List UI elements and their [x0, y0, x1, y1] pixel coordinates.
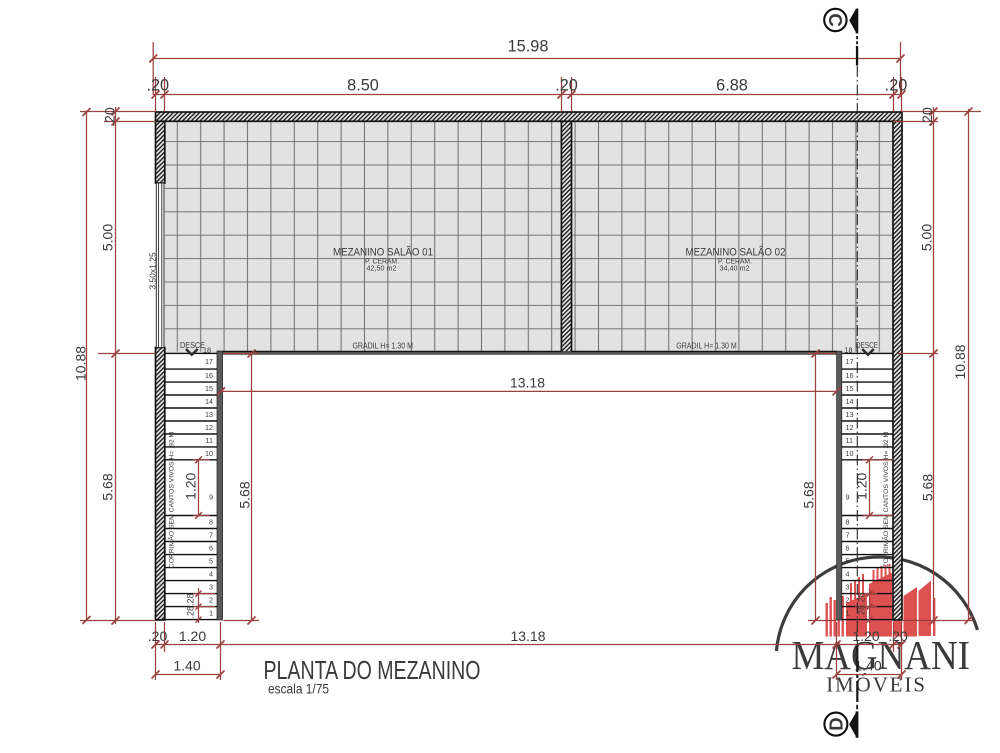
svg-text:1: 1: [209, 609, 213, 618]
svg-text:.20: .20: [919, 107, 935, 127]
svg-text:5.68: 5.68: [920, 474, 936, 501]
svg-text:PLANTA DO MEZANINO: PLANTA DO MEZANINO: [264, 655, 481, 685]
svg-text:1: 1: [846, 609, 850, 618]
svg-text:10: 10: [846, 449, 854, 458]
svg-text:3.50x1.25: 3.50x1.25: [147, 252, 157, 290]
svg-text:escala 1/75: escala 1/75: [268, 681, 329, 696]
svg-text:6.88: 6.88: [716, 77, 748, 95]
svg-text:.20: .20: [555, 77, 578, 95]
svg-text:14: 14: [846, 397, 854, 406]
svg-text:12: 12: [846, 423, 854, 432]
svg-text:DESCE: DESCE: [856, 341, 878, 350]
svg-text:5: 5: [209, 557, 213, 566]
svg-text:CORRIMÃO SEM CANTOS VIVOS H= .: CORRIMÃO SEM CANTOS VIVOS H= .92 M: [881, 431, 890, 568]
svg-text:42,50 m2: 42,50 m2: [367, 264, 397, 273]
svg-text:4: 4: [209, 570, 213, 579]
svg-text:14: 14: [205, 397, 213, 406]
svg-text:6: 6: [209, 543, 213, 552]
svg-text:8: 8: [846, 517, 850, 526]
svg-text:1.20: 1.20: [852, 628, 879, 644]
svg-text:7: 7: [846, 530, 850, 539]
svg-text:6: 6: [846, 543, 850, 552]
svg-text:.28.28: .28.28: [186, 593, 196, 618]
svg-text:IMÓVEIS: IMÓVEIS: [826, 673, 927, 697]
svg-text:16: 16: [205, 371, 213, 380]
svg-text:.20: .20: [148, 628, 168, 644]
svg-text:16: 16: [846, 371, 854, 380]
svg-text:CORRIMÃO SEM CANTOS VIVOS H= .: CORRIMÃO SEM CANTOS VIVOS H= .92 M: [167, 431, 176, 568]
svg-text:5.68: 5.68: [237, 481, 253, 508]
svg-text:13.18: 13.18: [510, 375, 545, 391]
svg-text:3: 3: [209, 583, 213, 592]
svg-text:34,40 m2: 34,40 m2: [720, 264, 750, 273]
svg-text:8.50: 8.50: [347, 77, 379, 95]
svg-text:13.18: 13.18: [510, 628, 545, 644]
svg-text:5.00: 5.00: [99, 224, 115, 251]
svg-text:1.20: 1.20: [854, 472, 870, 499]
svg-text:.20: .20: [885, 77, 908, 95]
svg-text:12: 12: [205, 423, 213, 432]
svg-text:1.20: 1.20: [179, 628, 206, 644]
svg-text:15: 15: [205, 384, 213, 393]
svg-text:4: 4: [846, 570, 850, 579]
svg-text:GRADIL H= 1.30 M: GRADIL H= 1.30 M: [352, 342, 413, 351]
svg-text:13: 13: [846, 410, 854, 419]
svg-text:13: 13: [205, 410, 213, 419]
svg-text:1.20: 1.20: [183, 472, 199, 499]
svg-text:.20: .20: [146, 77, 169, 95]
svg-text:.20: .20: [102, 107, 118, 127]
svg-text:5.00: 5.00: [919, 224, 935, 251]
svg-text:DESCE: DESCE: [180, 341, 205, 350]
svg-text:5: 5: [846, 557, 850, 566]
svg-text:9: 9: [209, 492, 213, 501]
svg-text:8: 8: [209, 517, 213, 526]
svg-text:D: D: [825, 717, 846, 730]
svg-text:.20: .20: [888, 628, 908, 644]
svg-text:5.68: 5.68: [99, 473, 115, 500]
svg-text:10: 10: [205, 449, 213, 458]
svg-text:18: 18: [845, 346, 853, 355]
svg-text:15.98: 15.98: [508, 38, 549, 56]
svg-text:1.40: 1.40: [854, 658, 881, 674]
svg-text:GRADIL H= 1.30 M: GRADIL H= 1.30 M: [676, 342, 737, 351]
svg-text:17: 17: [205, 357, 213, 366]
svg-text:5.68: 5.68: [801, 481, 817, 508]
svg-text:15: 15: [846, 384, 854, 393]
svg-text:11: 11: [846, 436, 853, 445]
svg-text:1.40: 1.40: [173, 658, 200, 674]
svg-text:C: C: [825, 13, 846, 26]
svg-text:3: 3: [846, 583, 850, 592]
svg-text:7: 7: [209, 530, 213, 539]
svg-text:11: 11: [206, 436, 213, 445]
svg-text:10.88: 10.88: [72, 346, 88, 381]
svg-text:10.88: 10.88: [952, 344, 968, 379]
svg-text:2: 2: [846, 596, 850, 605]
svg-text:9: 9: [846, 492, 850, 501]
svg-text:.28.28: .28.28: [857, 592, 867, 617]
svg-text:2: 2: [209, 596, 213, 605]
svg-text:17: 17: [846, 357, 854, 366]
